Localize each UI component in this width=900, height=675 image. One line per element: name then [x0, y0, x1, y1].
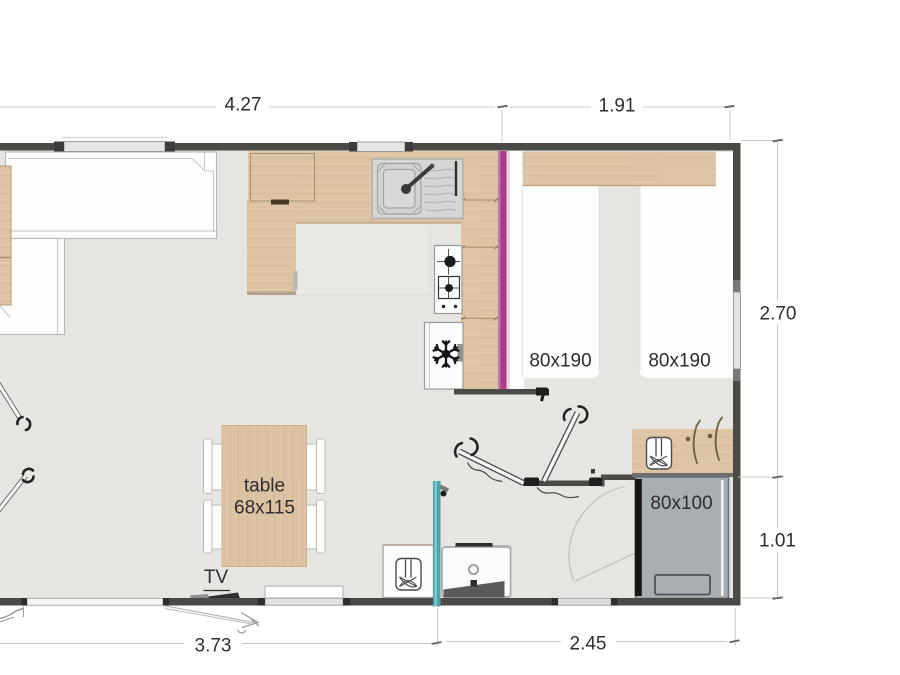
svg-text:2.70: 2.70 [760, 304, 797, 325]
svg-text:1.01: 1.01 [759, 531, 796, 552]
svg-text:4.27: 4.27 [225, 95, 262, 116]
svg-text:80x190: 80x190 [529, 351, 591, 372]
svg-text:1.91: 1.91 [599, 96, 636, 117]
svg-text:table: table [244, 476, 285, 497]
svg-text:TV: TV [204, 567, 229, 588]
svg-text:80x100: 80x100 [650, 493, 712, 514]
svg-text:3.73: 3.73 [195, 636, 232, 657]
svg-text:80x190: 80x190 [648, 351, 710, 372]
svg-text:68x115: 68x115 [234, 498, 295, 519]
svg-text:2.45: 2.45 [570, 634, 607, 655]
